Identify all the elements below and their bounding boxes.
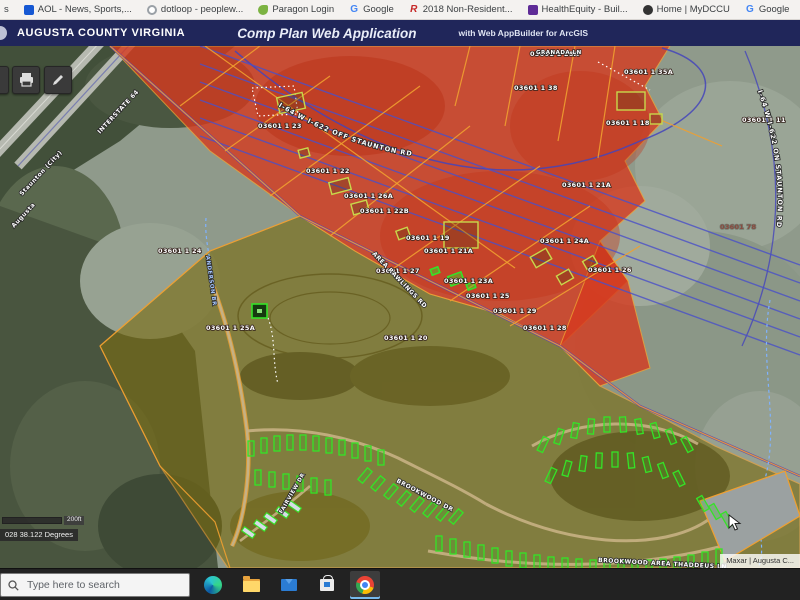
- parcel-label: 03601 1 28: [523, 324, 567, 332]
- parcel-label: 03601 1 24: [158, 247, 202, 255]
- road-label: GRANADA LN: [536, 50, 582, 56]
- parcel-label: 03601 1 23A: [444, 277, 493, 285]
- mobile-home-highlight[interactable]: [450, 539, 456, 554]
- parcel-label: 03601 78: [720, 223, 756, 231]
- mobile-home-highlight[interactable]: [590, 560, 596, 568]
- bookmark-item[interactable]: dotloop - peoplew...: [147, 4, 243, 15]
- page-title: Comp Plan Web Application: [237, 26, 416, 41]
- mobile-home-highlight[interactable]: [436, 536, 442, 551]
- mobile-home-highlight[interactable]: [283, 474, 289, 489]
- mouse-cursor-icon: [728, 514, 742, 537]
- mobile-home-highlight[interactable]: [506, 551, 512, 566]
- mobile-home-highlight[interactable]: [300, 435, 306, 450]
- mobile-home-highlight[interactable]: [492, 548, 498, 563]
- bookmark-item[interactable]: GGoogle: [349, 4, 394, 15]
- mail-icon: [281, 579, 297, 591]
- bookmark-item[interactable]: HealthEquity - Buil...: [528, 4, 628, 15]
- mobile-home-highlight[interactable]: [562, 558, 568, 568]
- mobile-home-highlight[interactable]: [365, 446, 371, 461]
- bookmark-label: Paragon Login: [272, 4, 334, 15]
- printer-icon: [19, 73, 34, 87]
- monitor-screen: sAOL - News, Sports,...dotloop - peoplew…: [0, 0, 800, 600]
- taskbar-store-button[interactable]: [312, 571, 342, 599]
- pencil-icon: [51, 73, 65, 87]
- bookmark-label: Google: [759, 4, 790, 15]
- mobile-home-highlight[interactable]: [520, 553, 526, 568]
- mobile-home-highlight[interactable]: [596, 453, 603, 468]
- chrome-icon: [356, 576, 374, 594]
- bookmark-label: 2018 Non-Resident...: [423, 4, 513, 15]
- header-subtitle: with Web AppBuilder for ArcGIS: [458, 28, 588, 38]
- doc2018-icon: R: [409, 5, 419, 15]
- bookmark-item[interactable]: Paragon Login: [258, 4, 334, 15]
- draw-tool-button[interactable]: [44, 66, 72, 94]
- mobile-home-highlight[interactable]: [464, 542, 470, 557]
- mobile-home-highlight[interactable]: [548, 557, 554, 568]
- bookmark-item[interactable]: s: [4, 4, 9, 15]
- bookmark-label: AOL - News, Sports,...: [38, 4, 132, 15]
- aol-icon: [24, 5, 34, 15]
- mobile-home-highlight[interactable]: [604, 417, 610, 432]
- building-outline[interactable]: [617, 92, 645, 110]
- map-svg[interactable]: 03601 1 2303601 1 2203601 1 26A03601 1 2…: [0, 46, 800, 568]
- taskbar-mail-button[interactable]: [274, 571, 304, 599]
- google-icon: G: [349, 5, 359, 15]
- print-tool-button[interactable]: [12, 66, 40, 94]
- edge-icon: [204, 576, 222, 594]
- parcel-label: 03601 1 21A: [424, 247, 473, 255]
- app-header: AUGUSTA COUNTY VIRGINIA Comp Plan Web Ap…: [0, 20, 800, 46]
- bookmark-label: Home | MyDCCU: [657, 4, 730, 15]
- map-canvas[interactable]: 03601 1 2303601 1 2203601 1 26A03601 1 2…: [0, 46, 800, 568]
- parcel-label: 03601 1 23: [258, 122, 302, 130]
- mobile-home-highlight[interactable]: [248, 441, 254, 456]
- mobile-home-highlight[interactable]: [478, 545, 484, 560]
- healthequity-icon: [528, 5, 538, 15]
- map-attribution: Maxar | Augusta C...: [720, 554, 800, 568]
- taskbar-search[interactable]: [0, 573, 190, 597]
- county-seal-icon: [0, 26, 7, 40]
- bookmark-item[interactable]: AOL - News, Sports,...: [24, 4, 132, 15]
- dccu-icon: [643, 5, 653, 15]
- mobile-home-highlight[interactable]: [378, 450, 384, 465]
- store-icon: [320, 579, 334, 591]
- parcel-label: 03601 1 24A: [540, 237, 589, 245]
- parcel-label: 03601 1 26: [588, 266, 632, 274]
- scale-bar: 200ft: [2, 516, 84, 525]
- parcel-label: 03601 1 21A: [562, 181, 611, 189]
- search-input[interactable]: [25, 578, 179, 592]
- mobile-home-highlight[interactable]: [255, 470, 261, 485]
- mobile-home-highlight[interactable]: [587, 419, 594, 434]
- mobile-home-highlight[interactable]: [579, 456, 587, 472]
- mobile-home-highlight[interactable]: [325, 480, 331, 495]
- parcel-label: 03601 1 25A: [206, 324, 255, 332]
- mobile-home-highlight[interactable]: [612, 452, 618, 467]
- bookmark-item[interactable]: R2018 Non-Resident...: [409, 4, 513, 15]
- building-outline[interactable]: [298, 148, 310, 158]
- dotloop-icon: [147, 5, 157, 15]
- bookmark-label: dotloop - peoplew...: [161, 4, 243, 15]
- parcel-label: 03601 1 18: [606, 119, 650, 127]
- parcel-label: 03601 1 38: [514, 84, 558, 92]
- mobile-home-highlight[interactable]: [326, 438, 332, 453]
- parcel-label: 03601 1 29: [493, 307, 537, 315]
- parcel-label: 03601 1 20: [384, 334, 428, 342]
- file-explorer-icon: [243, 579, 260, 592]
- taskbar-edge-button[interactable]: [198, 571, 228, 599]
- taskbar-explorer-button[interactable]: [236, 571, 266, 599]
- bookmark-label: s: [4, 4, 9, 15]
- mobile-home-highlight[interactable]: [311, 478, 317, 493]
- mobile-home-highlight[interactable]: [269, 472, 275, 487]
- parcel-label: 03601 1 26A: [344, 192, 393, 200]
- mobile-home-highlight[interactable]: [261, 438, 267, 453]
- building-outline[interactable]: [650, 114, 662, 124]
- paragon-icon: [258, 5, 268, 15]
- mobile-home-highlight[interactable]: [627, 453, 635, 469]
- bookmark-label: HealthEquity - Buil...: [542, 4, 628, 15]
- green-marker-icon[interactable]: [252, 304, 267, 318]
- parcel-label: 03601 1 22: [306, 167, 350, 175]
- google-icon: G: [745, 5, 755, 15]
- windows-taskbar: [0, 568, 800, 600]
- coordinates-readout: 028 38.122 Degrees: [0, 529, 78, 541]
- parcel-label: 03601 1 25: [466, 292, 510, 300]
- taskbar-chrome-button[interactable]: [350, 571, 380, 599]
- mobile-home-highlight[interactable]: [339, 440, 345, 455]
- mobile-home-highlight[interactable]: [287, 435, 293, 450]
- search-icon: [8, 580, 19, 591]
- bookmarks-bar: sAOL - News, Sports,...dotloop - peoplew…: [0, 0, 800, 20]
- parcel-label: 03601 1 35A: [624, 68, 673, 76]
- mobile-home-highlight[interactable]: [619, 417, 626, 432]
- partial-tool-button[interactable]: [0, 66, 9, 94]
- mobile-home-highlight[interactable]: [352, 443, 358, 458]
- parcel-label: 03601 1 22B: [360, 207, 409, 215]
- bookmark-item[interactable]: Home | MyDCCU: [643, 4, 730, 15]
- mobile-home-highlight[interactable]: [313, 436, 319, 451]
- mobile-home-highlight[interactable]: [576, 559, 582, 568]
- mobile-home-highlight[interactable]: [534, 555, 540, 568]
- scale-line: [2, 517, 62, 524]
- bookmark-item[interactable]: GGoogle: [745, 4, 790, 15]
- mobile-home-highlight[interactable]: [274, 436, 280, 451]
- header-brand: AUGUSTA COUNTY VIRGINIA: [17, 27, 185, 39]
- bookmark-label: Google: [363, 4, 394, 15]
- parcel-label: 03601 1 19: [406, 234, 450, 242]
- scale-label: 200ft: [64, 516, 84, 525]
